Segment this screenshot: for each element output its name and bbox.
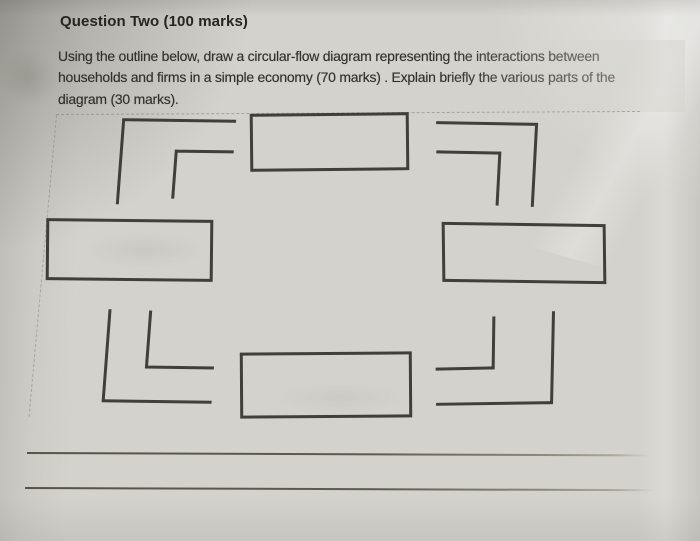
circular-flow-outline: [0, 0, 700, 541]
exam-paper-photo: Question Two (100 marks) Using the outli…: [0, 0, 700, 541]
corner-bottom-left-inner: [145, 311, 218, 370]
outline-box-left: [46, 218, 214, 282]
corner-top-right-inner: [434, 150, 502, 205]
outline-box-top: [250, 112, 410, 172]
outline-box-right: [442, 222, 607, 284]
corner-top-left-inner: [171, 150, 234, 200]
corner-bottom-right-inner: [436, 316, 496, 370]
outline-box-bottom: [240, 351, 412, 418]
